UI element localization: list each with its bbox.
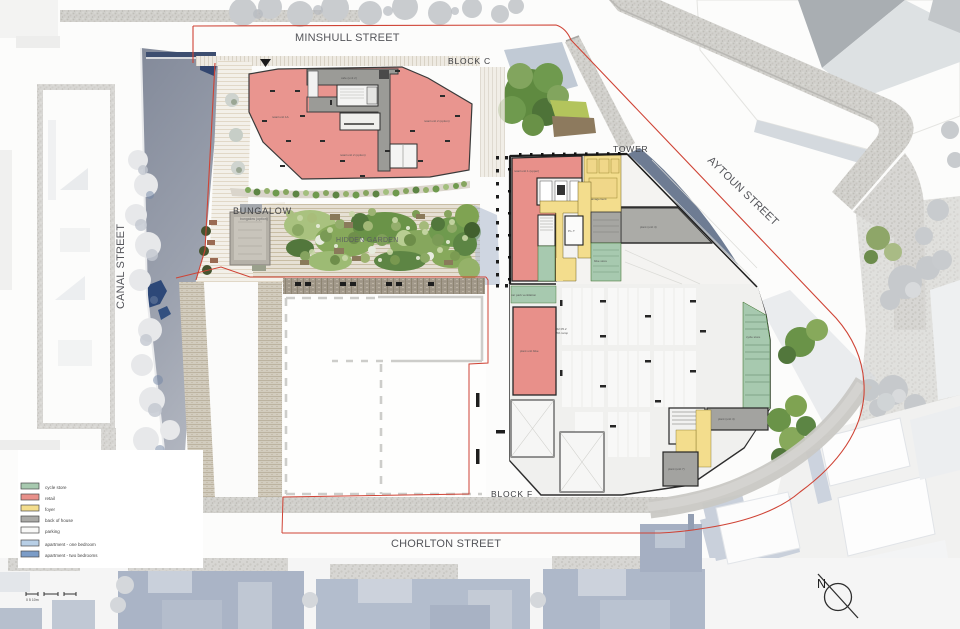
svg-text:car park ventilation: car park ventilation bbox=[511, 293, 537, 297]
svg-text:retail unit 1A: retail unit 1A bbox=[272, 115, 289, 119]
svg-text:bike store: bike store bbox=[594, 259, 607, 263]
svg-text:cycle store: cycle store bbox=[45, 485, 67, 490]
svg-text:parking: parking bbox=[45, 529, 60, 534]
svg-text:BLOCK F: BLOCK F bbox=[491, 489, 533, 499]
svg-text:P.L.T: P.L.T bbox=[568, 229, 575, 233]
svg-text:TOWER: TOWER bbox=[613, 144, 648, 154]
svg-text:back of house: back of house bbox=[45, 518, 74, 523]
svg-text:apartment - two bedrooms: apartment - two bedrooms bbox=[45, 553, 98, 558]
svg-text:plant (unit 4): plant (unit 4) bbox=[640, 225, 657, 229]
svg-text:5% ramp: 5% ramp bbox=[556, 331, 568, 335]
svg-text:plant (unit 4): plant (unit 4) bbox=[718, 417, 735, 421]
svg-text:0 5 10m: 0 5 10m bbox=[26, 598, 39, 602]
svg-text:retail unit 2 (option): retail unit 2 (option) bbox=[340, 153, 366, 157]
svg-text:retail unit 2 (option): retail unit 2 (option) bbox=[424, 119, 450, 123]
svg-text:cycle store: cycle store bbox=[746, 335, 761, 339]
svg-text:management: management bbox=[589, 197, 607, 201]
svg-text:plant unit bike: plant unit bike bbox=[520, 349, 539, 353]
svg-text:foyer: foyer bbox=[45, 507, 56, 512]
svg-text:HIDDEN GARDEN: HIDDEN GARDEN bbox=[336, 237, 399, 244]
svg-text:plant (unit 7): plant (unit 7) bbox=[668, 467, 685, 471]
svg-text:retail unit 1 (upper): retail unit 1 (upper) bbox=[514, 169, 539, 173]
svg-text:cafe (unit 2): cafe (unit 2) bbox=[341, 76, 357, 80]
svg-text:CHORLTON STREET: CHORLTON STREET bbox=[391, 538, 501, 550]
svg-text:retail: retail bbox=[45, 496, 55, 501]
svg-text:BUNGALOW: BUNGALOW bbox=[233, 206, 292, 216]
svg-text:apartment - one bedroom: apartment - one bedroom bbox=[45, 542, 96, 547]
svg-text:BLOCK C: BLOCK C bbox=[448, 56, 491, 66]
svg-text:CANAL STREET: CANAL STREET bbox=[115, 224, 127, 309]
svg-text:bungalow (option): bungalow (option) bbox=[240, 217, 268, 221]
svg-text:N: N bbox=[817, 577, 826, 591]
svg-text:MINSHULL STREET: MINSHULL STREET bbox=[295, 32, 400, 44]
